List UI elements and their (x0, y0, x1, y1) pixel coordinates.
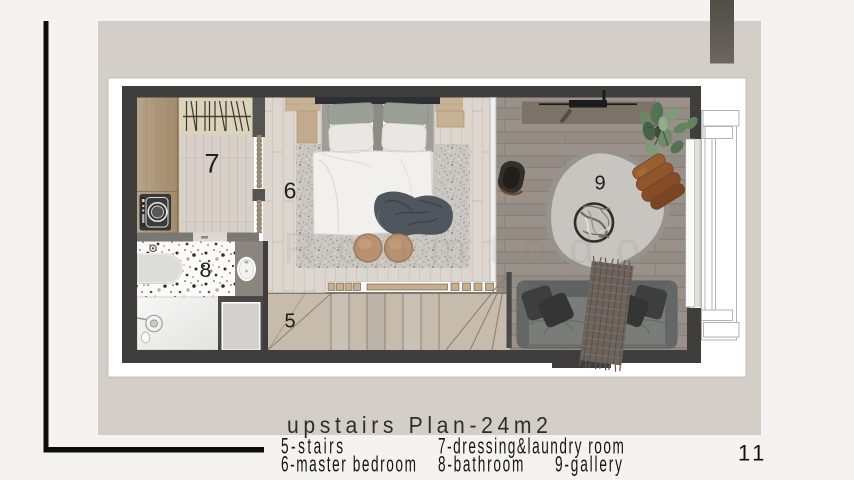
svg-text:Roomtodo: Roomtodo (283, 224, 662, 273)
svg-text:7: 7 (204, 149, 219, 179)
svg-text:5: 5 (284, 311, 295, 333)
svg-text:8-bathroom: 8-bathroom (438, 451, 525, 476)
svg-text:6-master bedroom: 6-master bedroom (281, 451, 418, 476)
svg-text:9: 9 (594, 173, 605, 195)
svg-text:8: 8 (200, 259, 212, 282)
svg-text:6: 6 (284, 178, 297, 204)
svg-text:11: 11 (738, 441, 768, 466)
svg-text:9-gallery: 9-gallery (555, 451, 624, 476)
